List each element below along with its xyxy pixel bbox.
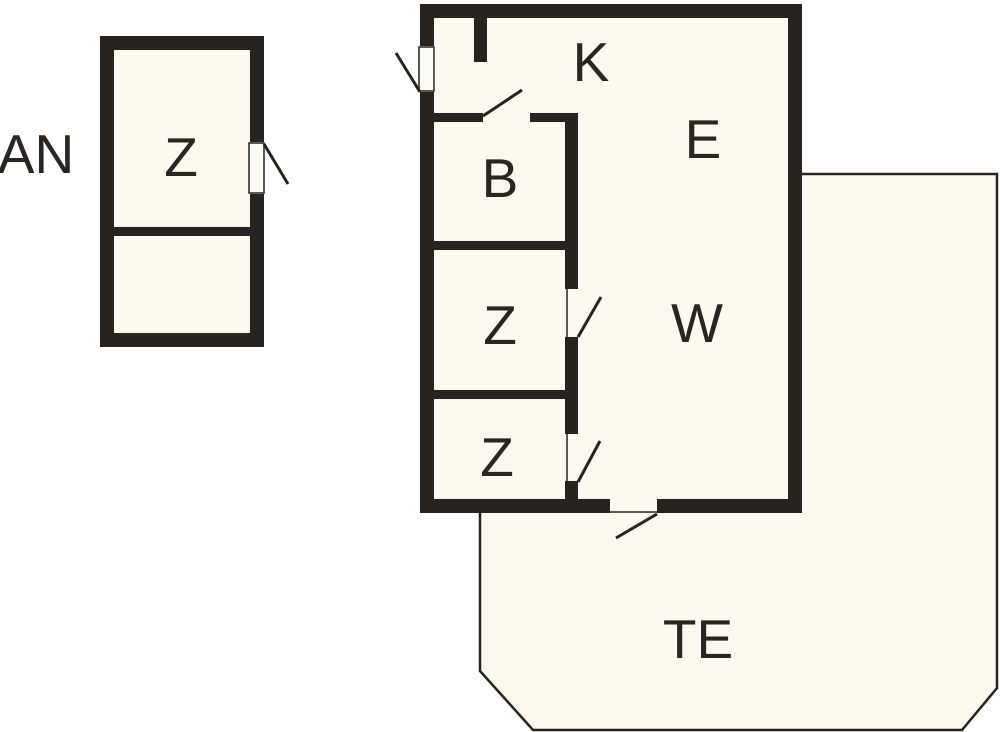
label-annex-room: Z <box>164 126 198 188</box>
bedroom-bedroom-divider <box>434 390 578 399</box>
label-bedroom-lower: Z <box>480 426 514 488</box>
label-bedroom-middle: Z <box>483 294 517 356</box>
entry-wall-stub <box>474 18 487 62</box>
label-kitchen: K <box>573 31 610 93</box>
entrance-door-leaf <box>419 47 434 91</box>
label-terrace: TE <box>663 608 733 670</box>
bathroom-wall-left <box>434 113 483 122</box>
label-living-room: W <box>671 292 723 354</box>
annex-divider-wall <box>114 227 250 236</box>
floor-plan-drawing: AN Z K B E Z W Z TE <box>0 0 1000 732</box>
label-entry: E <box>685 108 722 170</box>
annex-building <box>100 36 288 347</box>
bathroom-bedroom-divider <box>434 241 578 250</box>
corridor-wall-upper <box>565 113 578 289</box>
corridor-wall-middle <box>565 337 578 434</box>
floor-plan: AN Z K B E Z W Z TE <box>0 0 1000 732</box>
corridor-wall-lower <box>565 481 578 499</box>
annex-door-leaf <box>249 143 264 193</box>
label-annex: AN <box>0 123 74 185</box>
label-bathroom: B <box>482 147 519 209</box>
annex-floor <box>114 50 250 333</box>
